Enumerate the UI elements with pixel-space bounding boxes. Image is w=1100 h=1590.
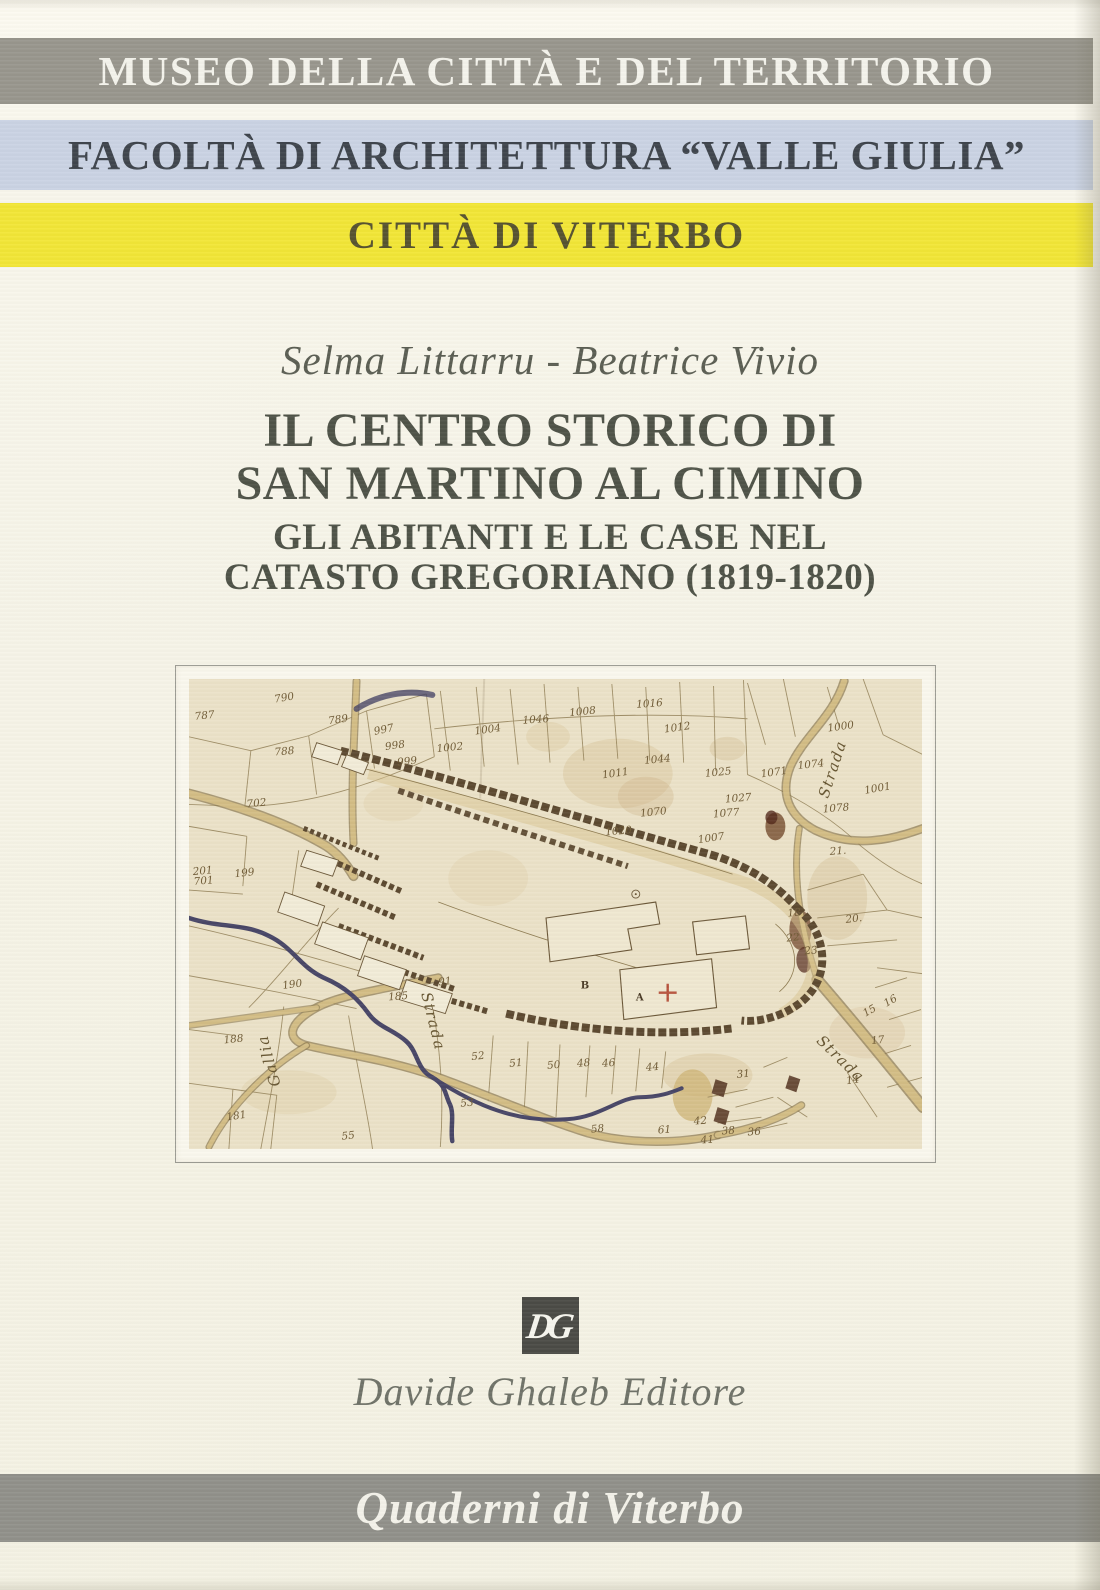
parcel-number: 18 [787, 906, 802, 919]
parcel-number: 23 [803, 944, 819, 957]
parcel-number: 199 [234, 866, 255, 880]
cadastral-map: 7877907897889979989991002100410461008101… [189, 679, 922, 1149]
parcel-number: 61 [657, 1124, 671, 1137]
publisher-logo-text: DG [524, 1305, 577, 1347]
parcel-number: 1077 [712, 806, 740, 820]
parcel-number: 702 [246, 796, 267, 810]
parcel-number: 41 [699, 1134, 714, 1147]
title-line-2: SAN MARTINO AL CIMINO [236, 457, 865, 510]
parcel-number: 58 [590, 1122, 605, 1135]
authors-line: Selma Littarru - Beatrice Vivio [0, 336, 1100, 384]
parcel-number: 31 [736, 1068, 750, 1081]
banner-series: Quaderni di Viterbo [0, 1474, 1100, 1542]
subtitle-line-2: CATASTO GREGORIANO (1819-1820) [224, 557, 876, 598]
parcel-number: 48 [576, 1057, 592, 1070]
publisher-logo: DG [522, 1297, 579, 1354]
cadastral-map-plate: 7877907897889979989991002100410461008101… [175, 665, 936, 1163]
parcel-number: 51 [509, 1057, 523, 1070]
parcel-number: 17 [871, 1034, 886, 1047]
parcel-number: 1016 [636, 697, 664, 711]
page-bottom-shadow [0, 1578, 1100, 1590]
parcel-number: 46 [600, 1057, 616, 1070]
parcel-number: 91 [438, 975, 453, 988]
banner-facolta-text: FACOLTÀ DI ARCHITETTURA “VALLE GIULIA” [68, 131, 1025, 179]
banner-citta: CITTÀ DI VITERBO [0, 203, 1093, 267]
book-cover: MUSEO DELLA CITTÀ E DEL TERRITORIO FACOL… [0, 0, 1100, 1590]
parcel-number: 1078 [822, 801, 850, 815]
parcel-number: 21. [828, 845, 846, 858]
parcel-number: 50 [547, 1059, 562, 1072]
banner-museo: MUSEO DELLA CITTÀ E DEL TERRITORIO [0, 38, 1093, 104]
building-letter: A [635, 993, 644, 1004]
book-title: IL CENTRO STORICO DISAN MARTINO AL CIMIN… [0, 404, 1100, 510]
banner-facolta: FACOLTÀ DI ARCHITETTURA “VALLE GIULIA” [0, 120, 1093, 190]
parcel-number: 788 [274, 745, 295, 759]
building-letter: B [581, 981, 589, 992]
parcel-number: 36 [747, 1126, 761, 1139]
parcel-number: 22 [785, 931, 801, 944]
parcel-number: 44 [644, 1061, 659, 1074]
parcel-number: 1046 [522, 713, 550, 727]
parcel-number: 185 [388, 990, 409, 1004]
page-top-shadow [0, 0, 1100, 10]
parcel-number: 42 [692, 1115, 708, 1128]
parcel-number: 1020 [605, 824, 633, 838]
banner-citta-text: CITTÀ DI VITERBO [348, 213, 746, 258]
book-subtitle: GLI ABITANTI E LE CASE NELCATASTO GREGOR… [0, 518, 1100, 598]
parcel-number: 38 [721, 1125, 735, 1138]
parcel-number: 52 [471, 1050, 486, 1063]
parcel-number: 1027 [724, 791, 752, 805]
subtitle-line-1: GLI ABITANTI E LE CASE NEL [273, 517, 827, 558]
parcel-number: 188 [223, 1032, 244, 1046]
banner-museo-text: MUSEO DELLA CITTÀ E DEL TERRITORIO [99, 47, 995, 95]
parcel-number: 20. [844, 912, 863, 926]
parcel-number: 787 [194, 709, 215, 723]
parcel-number: 999 [397, 755, 418, 769]
publisher-name: Davide Ghaleb Editore [0, 1368, 1100, 1415]
title-line-1: IL CENTRO STORICO DI [263, 404, 836, 457]
parcel-number: 53 [460, 1097, 475, 1110]
parcel-number: 201 [191, 864, 213, 878]
banner-series-text: Quaderni di Viterbo [355, 1482, 744, 1534]
parcel-number: 55 [341, 1129, 356, 1142]
